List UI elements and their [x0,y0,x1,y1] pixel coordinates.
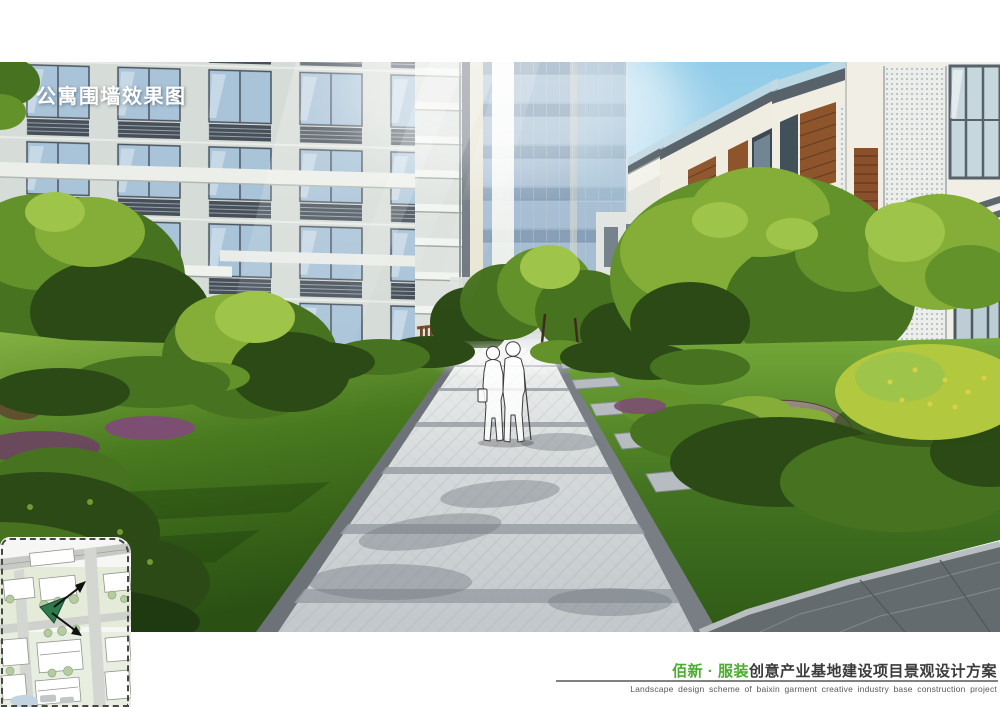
map-water [10,695,38,707]
presentation-board: 公寓围墙效果图 [0,0,1000,707]
rendering-scene [0,62,1000,632]
main-rendering [0,62,1000,632]
project-name-rest: 创意产业基地建设项目景观设计方案 [749,663,997,680]
project-title-cn: 佰新 · 服装创意产业基地建设项目景观设计方案 [0,660,997,681]
footer-divider-line [556,680,998,682]
page-title: 公寓围墙效果图 [36,80,187,109]
site-plan-inset [0,537,131,707]
project-title-en: Landscape design scheme of baixin garmen… [0,684,997,694]
project-name-highlight: 佰新 · 服装 [672,663,749,680]
site-plan-map [0,537,131,707]
